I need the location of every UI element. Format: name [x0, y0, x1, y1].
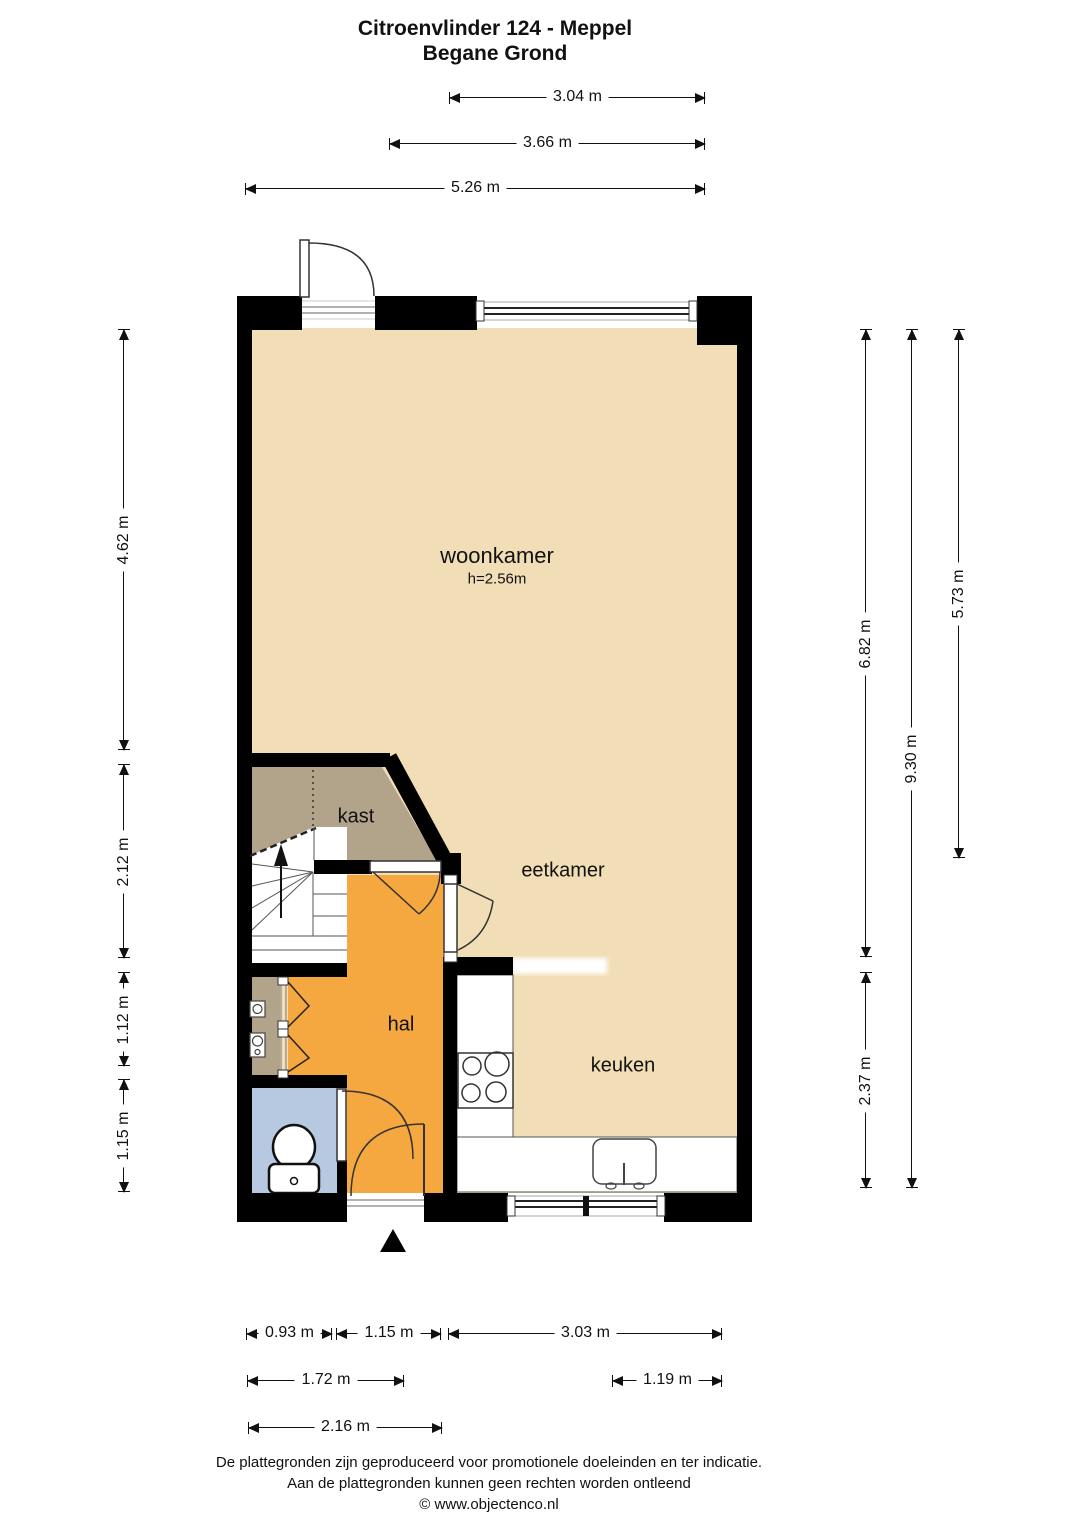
room-height-note: h=2.56m	[468, 571, 527, 588]
wall-top-right-block	[697, 296, 752, 345]
terrace-door-swing	[309, 243, 374, 296]
dimension-right-1: 6.82 m	[865, 330, 866, 957]
dimension-right-4: 2.37 m	[865, 973, 866, 1188]
meter-closet-floor	[252, 977, 280, 1075]
disclaimer-line: De plattegronden zijn geproduceerd voor …	[0, 1452, 978, 1473]
wall-bottom-mid-block	[424, 1193, 508, 1222]
entrance-arrow-icon	[380, 1229, 406, 1252]
window-end-cap	[657, 1196, 665, 1216]
dimension-top-2: 3.66 m	[390, 143, 705, 144]
title-address: Citroenvlinder 124 - Meppel	[0, 16, 990, 41]
dimension-left-2: 2.12 m	[123, 765, 124, 958]
dimension-bottom-2: 1.15 m	[337, 1333, 441, 1334]
wall-stairs-bottom	[237, 963, 347, 977]
dimension-label: 0.93 m	[258, 1324, 321, 1342]
dimension-bottom-3: 3.03 m	[449, 1333, 722, 1334]
dimension-label: 3.04 m	[546, 88, 609, 106]
dimension-label: 1.15 m	[115, 1105, 133, 1168]
window-end-cap	[689, 301, 697, 321]
dimension-label: 5.73 m	[950, 563, 968, 626]
room-label-woonkamer: woonkamer	[440, 543, 554, 569]
hall-floor-upper	[347, 875, 444, 963]
floorplan-page: Citroenvlinder 124 - Meppel Begane Grond…	[0, 0, 1080, 1527]
window-end-cap	[507, 1196, 515, 1216]
wall-hall-kitchen	[443, 962, 457, 1193]
page-title: Citroenvlinder 124 - Meppel Begane Grond	[0, 16, 990, 66]
room-label-keuken: keuken	[591, 1055, 656, 1078]
toilet-fixture	[269, 1125, 319, 1193]
wall-toilet-post	[337, 1160, 347, 1193]
toilet-door-leaf	[337, 1089, 346, 1161]
entrance-arrow	[380, 1229, 406, 1252]
room-label-hal: hal	[388, 1014, 415, 1037]
dimension-bottom-1: 0.93 m	[247, 1333, 332, 1334]
dimension-label: 1.19 m	[636, 1371, 699, 1389]
room-label-eetkamer: eetkamer	[521, 860, 604, 883]
dining-glass-door-leaf	[444, 884, 457, 952]
dimension-left-4: 1.15 m	[123, 1080, 124, 1192]
dimension-label: 1.15 m	[358, 1324, 421, 1342]
dimension-label: 1.72 m	[295, 1371, 358, 1389]
wall-top-left-block	[237, 296, 302, 330]
wall-top-mid-block	[375, 296, 477, 330]
window-end-cap	[476, 301, 484, 321]
wall-toilet-top	[237, 1075, 347, 1088]
dimension-label: 4.62 m	[115, 509, 133, 572]
flush-button-icon	[291, 1178, 298, 1185]
meter-door-cap	[278, 1070, 288, 1078]
disclaimer: De plattegronden zijn geproduceerd voor …	[0, 1452, 978, 1515]
disclaimer-copyright: © www.objectenco.nl	[0, 1494, 978, 1515]
dimension-label: 5.26 m	[444, 179, 507, 197]
dimension-label: 3.66 m	[516, 134, 579, 152]
dimension-bottom-5: 1.19 m	[613, 1380, 722, 1381]
hall-floor-lower	[347, 955, 443, 1193]
dimension-bottom-6: 2.16 m	[249, 1427, 442, 1428]
wall-bottom-left-block	[237, 1193, 347, 1222]
meter-door-cap	[278, 977, 288, 985]
dimension-right-3: 5.73 m	[958, 330, 959, 858]
electric-meter-icon	[250, 1001, 265, 1017]
dimension-left-1: 4.62 m	[123, 330, 124, 750]
meter-door-cap	[278, 1021, 288, 1029]
dimension-right-2: 9.30 m	[911, 330, 912, 1188]
room-label-kast: kast	[338, 806, 375, 829]
dimension-label: 9.30 m	[903, 728, 921, 791]
dimension-label: 2.12 m	[115, 830, 133, 893]
wall-closet-top	[252, 753, 390, 767]
closet-door-leaf	[370, 861, 441, 872]
window-mullion	[583, 1196, 589, 1216]
wall-closet-bottom	[314, 860, 372, 874]
dimension-bottom-4: 1.72 m	[248, 1380, 404, 1381]
dimension-label: 1.12 m	[115, 988, 133, 1051]
disclaimer-line: Aan de plattegronden kunnen geen rechten…	[0, 1473, 978, 1494]
toilet-bowl-icon	[273, 1125, 315, 1169]
wall-bottom-right-block	[664, 1193, 752, 1222]
dimension-left-3: 1.12 m	[123, 973, 124, 1066]
dimension-label: 2.16 m	[314, 1418, 377, 1436]
title-floor: Begane Grond	[0, 41, 990, 66]
dimension-top-3: 5.26 m	[246, 188, 705, 189]
dimension-label: 6.82 m	[857, 612, 875, 675]
dimension-label: 2.37 m	[857, 1049, 875, 1112]
dimension-top-1: 3.04 m	[450, 97, 705, 98]
meter-door-cap	[278, 1029, 288, 1037]
wall-right	[737, 300, 752, 1222]
terrace-door-leaf	[300, 240, 309, 297]
pass-through-highlight	[512, 958, 607, 974]
dimension-label: 3.03 m	[554, 1324, 617, 1342]
